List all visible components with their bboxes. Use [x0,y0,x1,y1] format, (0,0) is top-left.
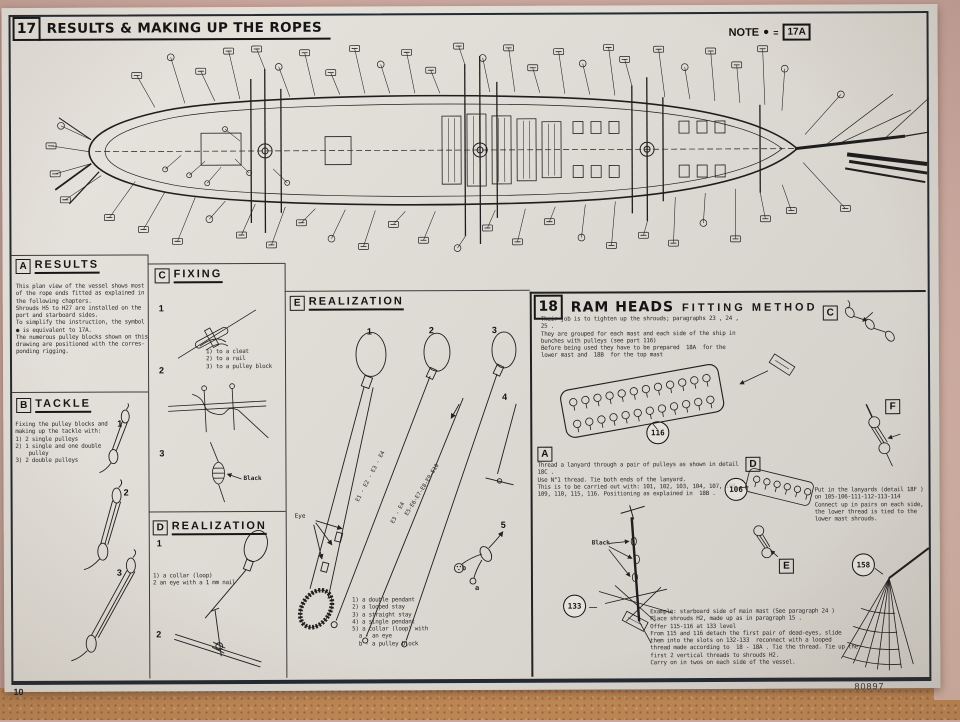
tackle-drawing [50,403,151,669]
section-c-header: C FIXING [155,268,223,283]
section-c-marker: C [155,268,170,283]
section-c-title: FIXING [174,268,223,283]
instruction-sheet: 17 RESULTS & MAKING UP THE ROPES NOTE ● … [0,0,960,722]
section-a-header: A RESULTS [16,259,100,274]
note-label: NOTE [729,26,760,38]
realization-d-drawing [149,518,287,677]
section-b-marker: B [16,398,31,413]
page-title: RESULTS & MAKING UP THE ROPES [47,20,323,37]
page-number: 10 [13,687,23,697]
section-a-marker: A [16,259,31,274]
print-code: 80897 [854,681,884,691]
section-a-body: This plan view of the vessel shows most … [16,283,148,356]
realization-e-drawing [285,292,532,679]
note-equals: = [773,27,778,37]
step-number-box: 17 [12,17,40,41]
ram-heads-drawing [530,290,932,680]
ship-plan-drawing [25,38,932,254]
note-symbol-icon: ● [763,27,769,38]
section-a-title: RESULTS [35,259,100,274]
fixing-drawing [148,286,286,515]
